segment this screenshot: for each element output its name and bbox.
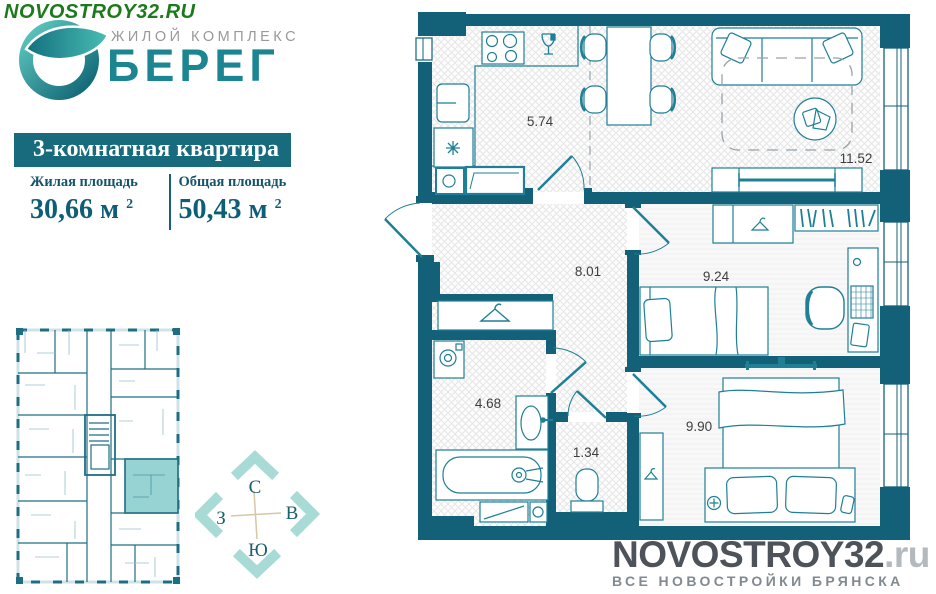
stove-icon [487,36,498,47]
kitchen-star-cabinet [434,128,473,167]
compass-east-label: В [286,503,299,524]
compass-south-label: Ю [248,540,268,561]
bereg-logo-icon [12,15,110,101]
compass-north-arrow-icon [238,457,272,473]
logo-name: БЕРЕГ [107,40,280,92]
dining-table [607,27,651,125]
double-bed [705,378,855,522]
highlighted-unit[interactable] [125,459,178,513]
desk [848,248,878,352]
watermark-domain: .ru [884,534,930,575]
fridge-icon [437,84,469,122]
washing-machine-icon [434,341,464,378]
bathroom-sink-icon [516,396,553,449]
bedroom-2-wardrobe [640,433,663,520]
living-area-block: Жилая площадь 30,66 м2 [14,170,155,226]
bookshelf [795,205,878,231]
computer-icon [851,286,873,318]
watermark-brand: NOVOSTROY32 [612,534,884,575]
hallway-area-label: 8.01 [575,264,601,279]
total-area-value: 50,43 м2 [179,194,314,226]
living-area-label: Жилая площадь [30,174,155,191]
compass-west-label: З [216,508,226,529]
hallway-wardrobe [438,301,553,330]
area-info: Жилая площадь 30,66 м2 Общая площадь 50,… [14,170,314,226]
kitchen-area-label: 5.74 [527,114,554,129]
wc-area-label: 1.34 [573,445,600,460]
total-area-label: Общая площадь [179,174,314,191]
window-bedroom-1 [884,222,908,306]
window-bedroom-2 [884,384,908,487]
bedroom-1-area-label: 9.24 [703,269,730,284]
watermark: NOVOSTROY32.ru ВСЕ НОВОСТРОЙКИ БРЯНСКА [612,537,932,589]
tv-stand [712,168,862,192]
compass-west-arrow-icon [200,499,216,531]
bedroom-2-area-label: 9.90 [686,419,712,434]
living-area-label-fp: 11.52 [840,151,873,166]
main-floor-plan: 5.74 11.52 8.01 9.24 4.68 1.34 9.90 [370,6,920,546]
sofa [712,28,862,85]
entrance-door [385,203,422,257]
window-kitchen-left [416,38,432,60]
compass-east-arrow-icon [297,498,313,530]
desk-chair [806,287,844,329]
building-overview-plan [15,325,183,587]
total-area-block: Общая площадь 50,43 м2 [155,170,314,226]
living-area-value: 30,66 м2 [30,194,155,226]
watermark-brand-line: NOVOSTROY32.ru [612,537,932,573]
compass-cross [231,491,281,539]
bathtub-icon [436,450,548,500]
area-divider [169,174,171,230]
window-living-room [884,48,908,170]
bedroom-1-wardrobe [713,205,793,243]
compass-north-label: С [249,477,262,498]
watermark-tagline: ВСЕ НОВОСТРОЙКИ БРЯНСКА [612,573,932,589]
coffee-table [794,98,836,140]
kitchen-sink-cabinet [436,167,524,194]
compass: С В Ю З [195,440,345,585]
page: NOVOSTROY32.RU ЖИЛОЙ КОМПЛЕКС БЕРЕГ 3-ко… [0,0,936,594]
bathroom-shelves [480,502,547,522]
apartment-type-badge: 3-комнатная квартира [14,133,291,167]
bathroom-area-label: 4.68 [475,396,501,411]
single-bed [640,287,768,355]
